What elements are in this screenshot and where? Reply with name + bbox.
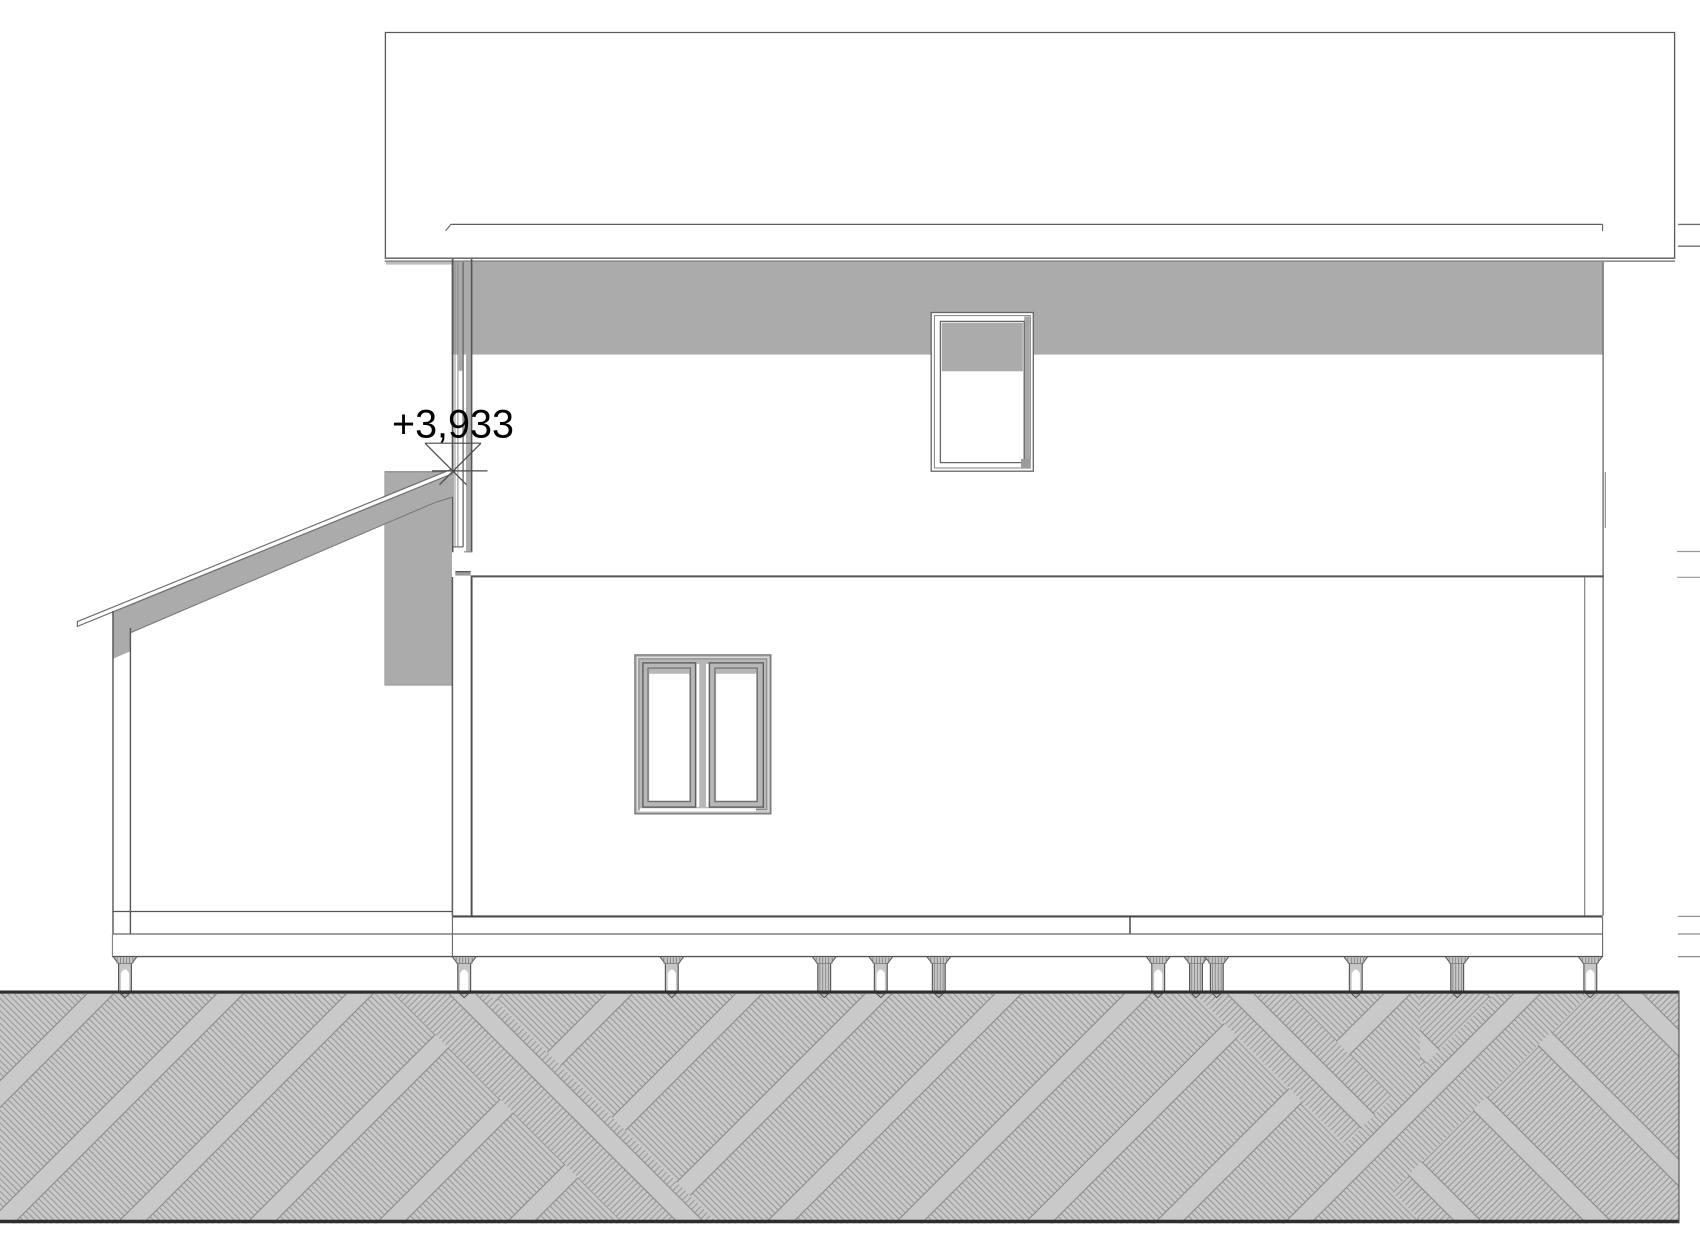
svg-text:+3,933: +3,933 (392, 403, 514, 447)
